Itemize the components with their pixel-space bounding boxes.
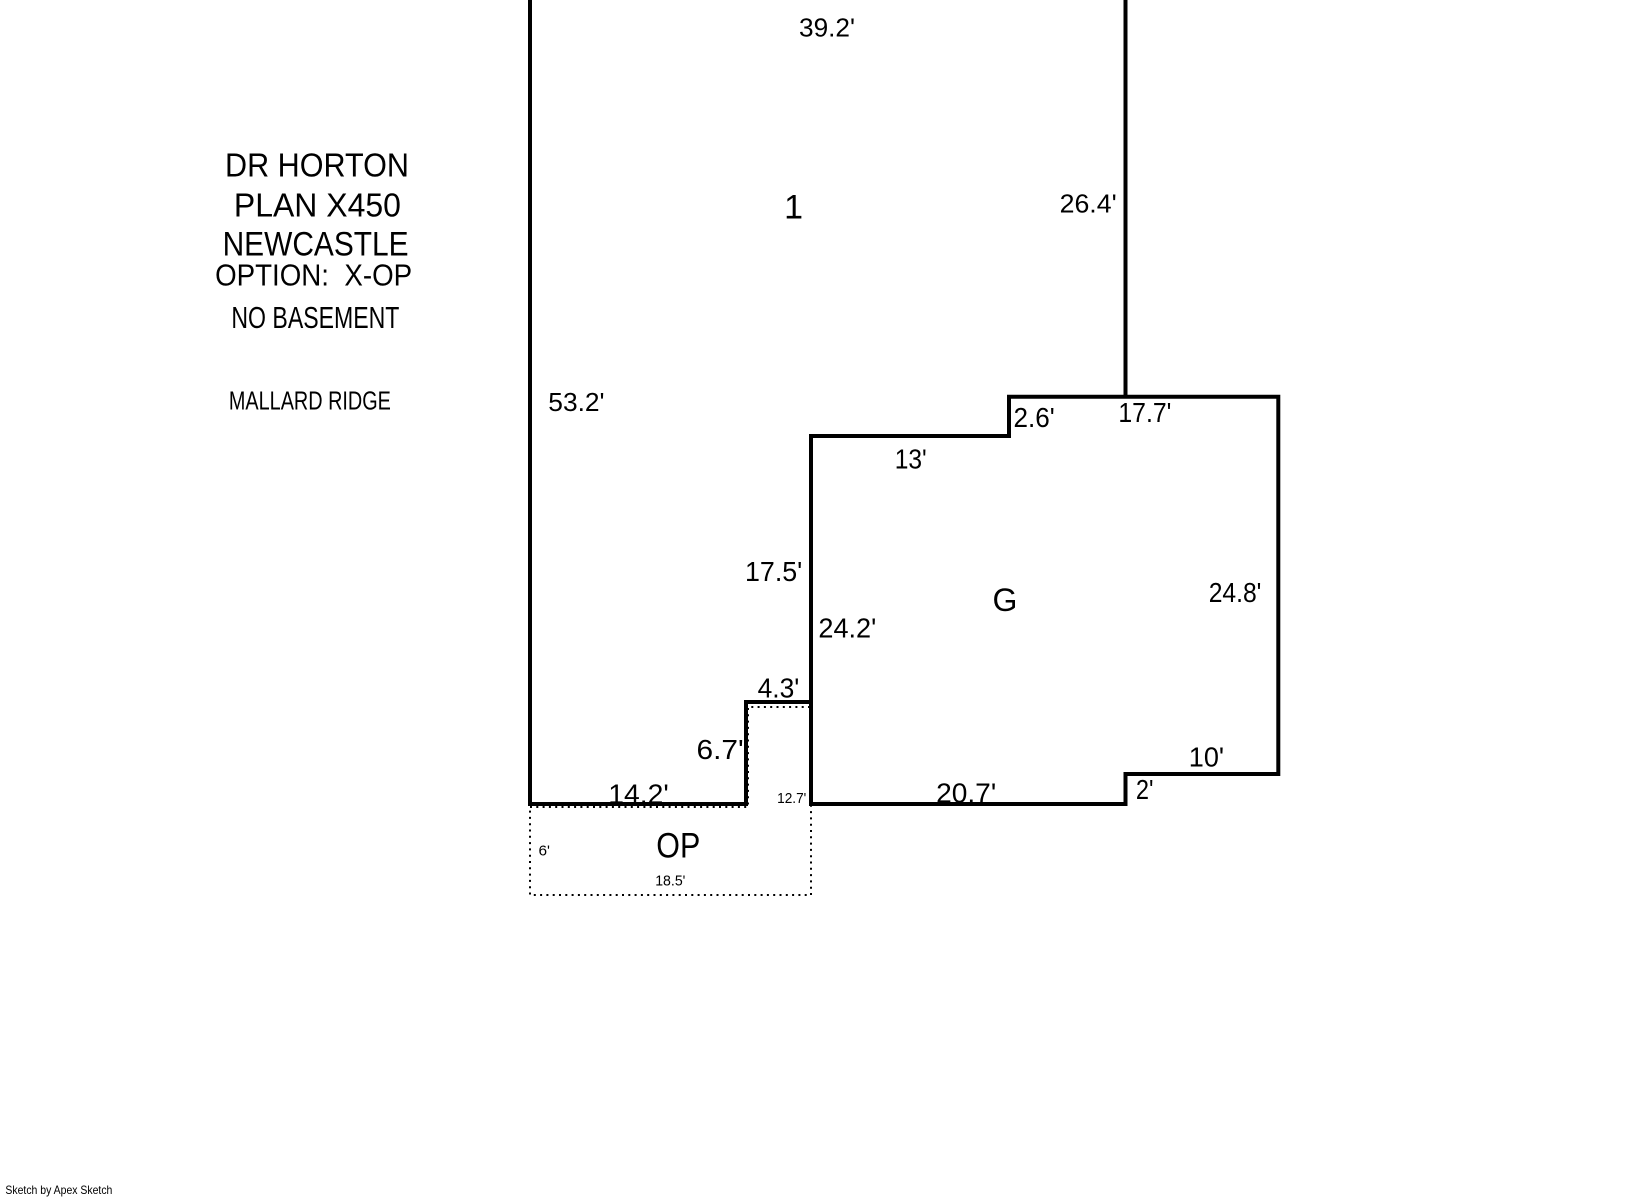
- svg-text:6.7': 6.7': [697, 734, 744, 765]
- svg-text:20.7': 20.7': [936, 778, 996, 809]
- svg-text:17.5': 17.5': [745, 556, 802, 587]
- svg-text:10': 10': [1189, 742, 1224, 773]
- svg-text:2.6': 2.6': [1014, 402, 1055, 433]
- svg-text:DR HORTON: DR HORTON: [225, 146, 409, 183]
- svg-text:1: 1: [784, 188, 803, 226]
- svg-text:NO BASEMENT: NO BASEMENT: [231, 300, 399, 335]
- svg-text:PLAN X450: PLAN X450: [234, 187, 401, 224]
- svg-text:24.2': 24.2': [818, 612, 876, 643]
- svg-text:2': 2': [1136, 774, 1154, 805]
- svg-text:13': 13': [895, 443, 927, 474]
- svg-text:OPTION: X-OP: OPTION: X-OP: [215, 257, 412, 292]
- svg-text:12.7': 12.7': [777, 790, 806, 807]
- svg-text:24.8': 24.8': [1209, 577, 1262, 608]
- svg-text:4.3': 4.3': [758, 672, 800, 703]
- svg-text:26.4': 26.4': [1060, 189, 1117, 219]
- svg-text:G: G: [993, 582, 1018, 618]
- svg-text:6': 6': [539, 842, 551, 859]
- svg-text:18.5': 18.5': [655, 873, 685, 890]
- svg-text:39.2': 39.2': [799, 13, 855, 43]
- svg-text:14.2': 14.2': [608, 778, 669, 809]
- svg-text:17.7': 17.7': [1118, 397, 1171, 428]
- svg-text:MALLARD RIDGE: MALLARD RIDGE: [229, 385, 391, 415]
- svg-text:53.2': 53.2': [548, 387, 604, 417]
- svg-text:Sketch by Apex Sketch: Sketch by Apex Sketch: [5, 1183, 112, 1197]
- svg-text:OP: OP: [656, 827, 700, 866]
